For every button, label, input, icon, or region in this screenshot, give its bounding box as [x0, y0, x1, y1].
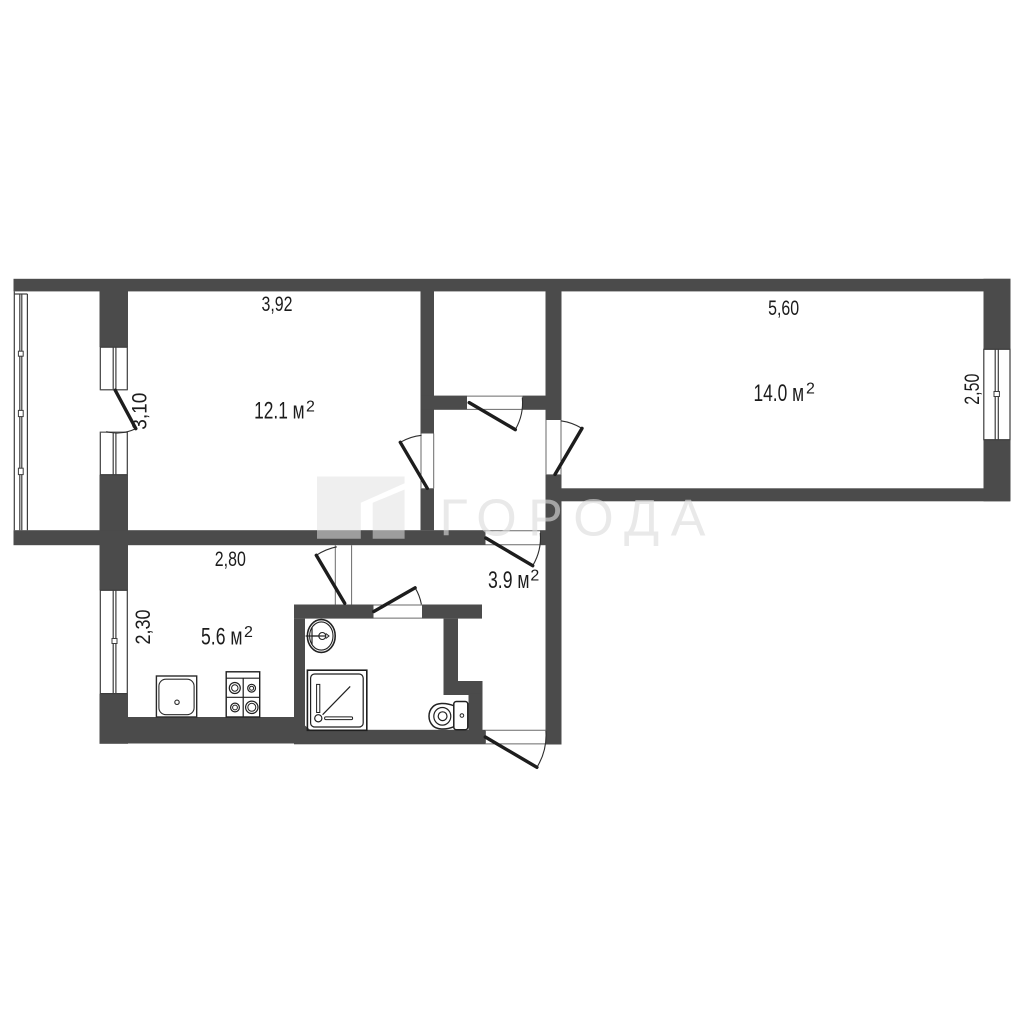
svg-text:12.1 м: 12.1 м: [254, 398, 305, 425]
svg-text:3,10: 3,10: [129, 393, 152, 430]
svg-text:3,92: 3,92: [262, 293, 293, 316]
svg-text:14.0 м: 14.0 м: [754, 380, 805, 407]
svg-text:2: 2: [306, 398, 315, 415]
svg-text:2: 2: [806, 381, 815, 398]
svg-text:ГОРОДА: ГОРОДА: [440, 490, 717, 548]
svg-text:2: 2: [244, 624, 253, 641]
svg-text:2,30: 2,30: [132, 610, 155, 645]
svg-text:3.9 м: 3.9 м: [488, 567, 530, 594]
svg-text:2,80: 2,80: [215, 548, 246, 571]
svg-text:5,60: 5,60: [768, 297, 799, 320]
svg-text:2,50: 2,50: [961, 374, 984, 405]
svg-text:5.6 м: 5.6 м: [201, 624, 243, 651]
svg-text:2: 2: [530, 568, 539, 585]
